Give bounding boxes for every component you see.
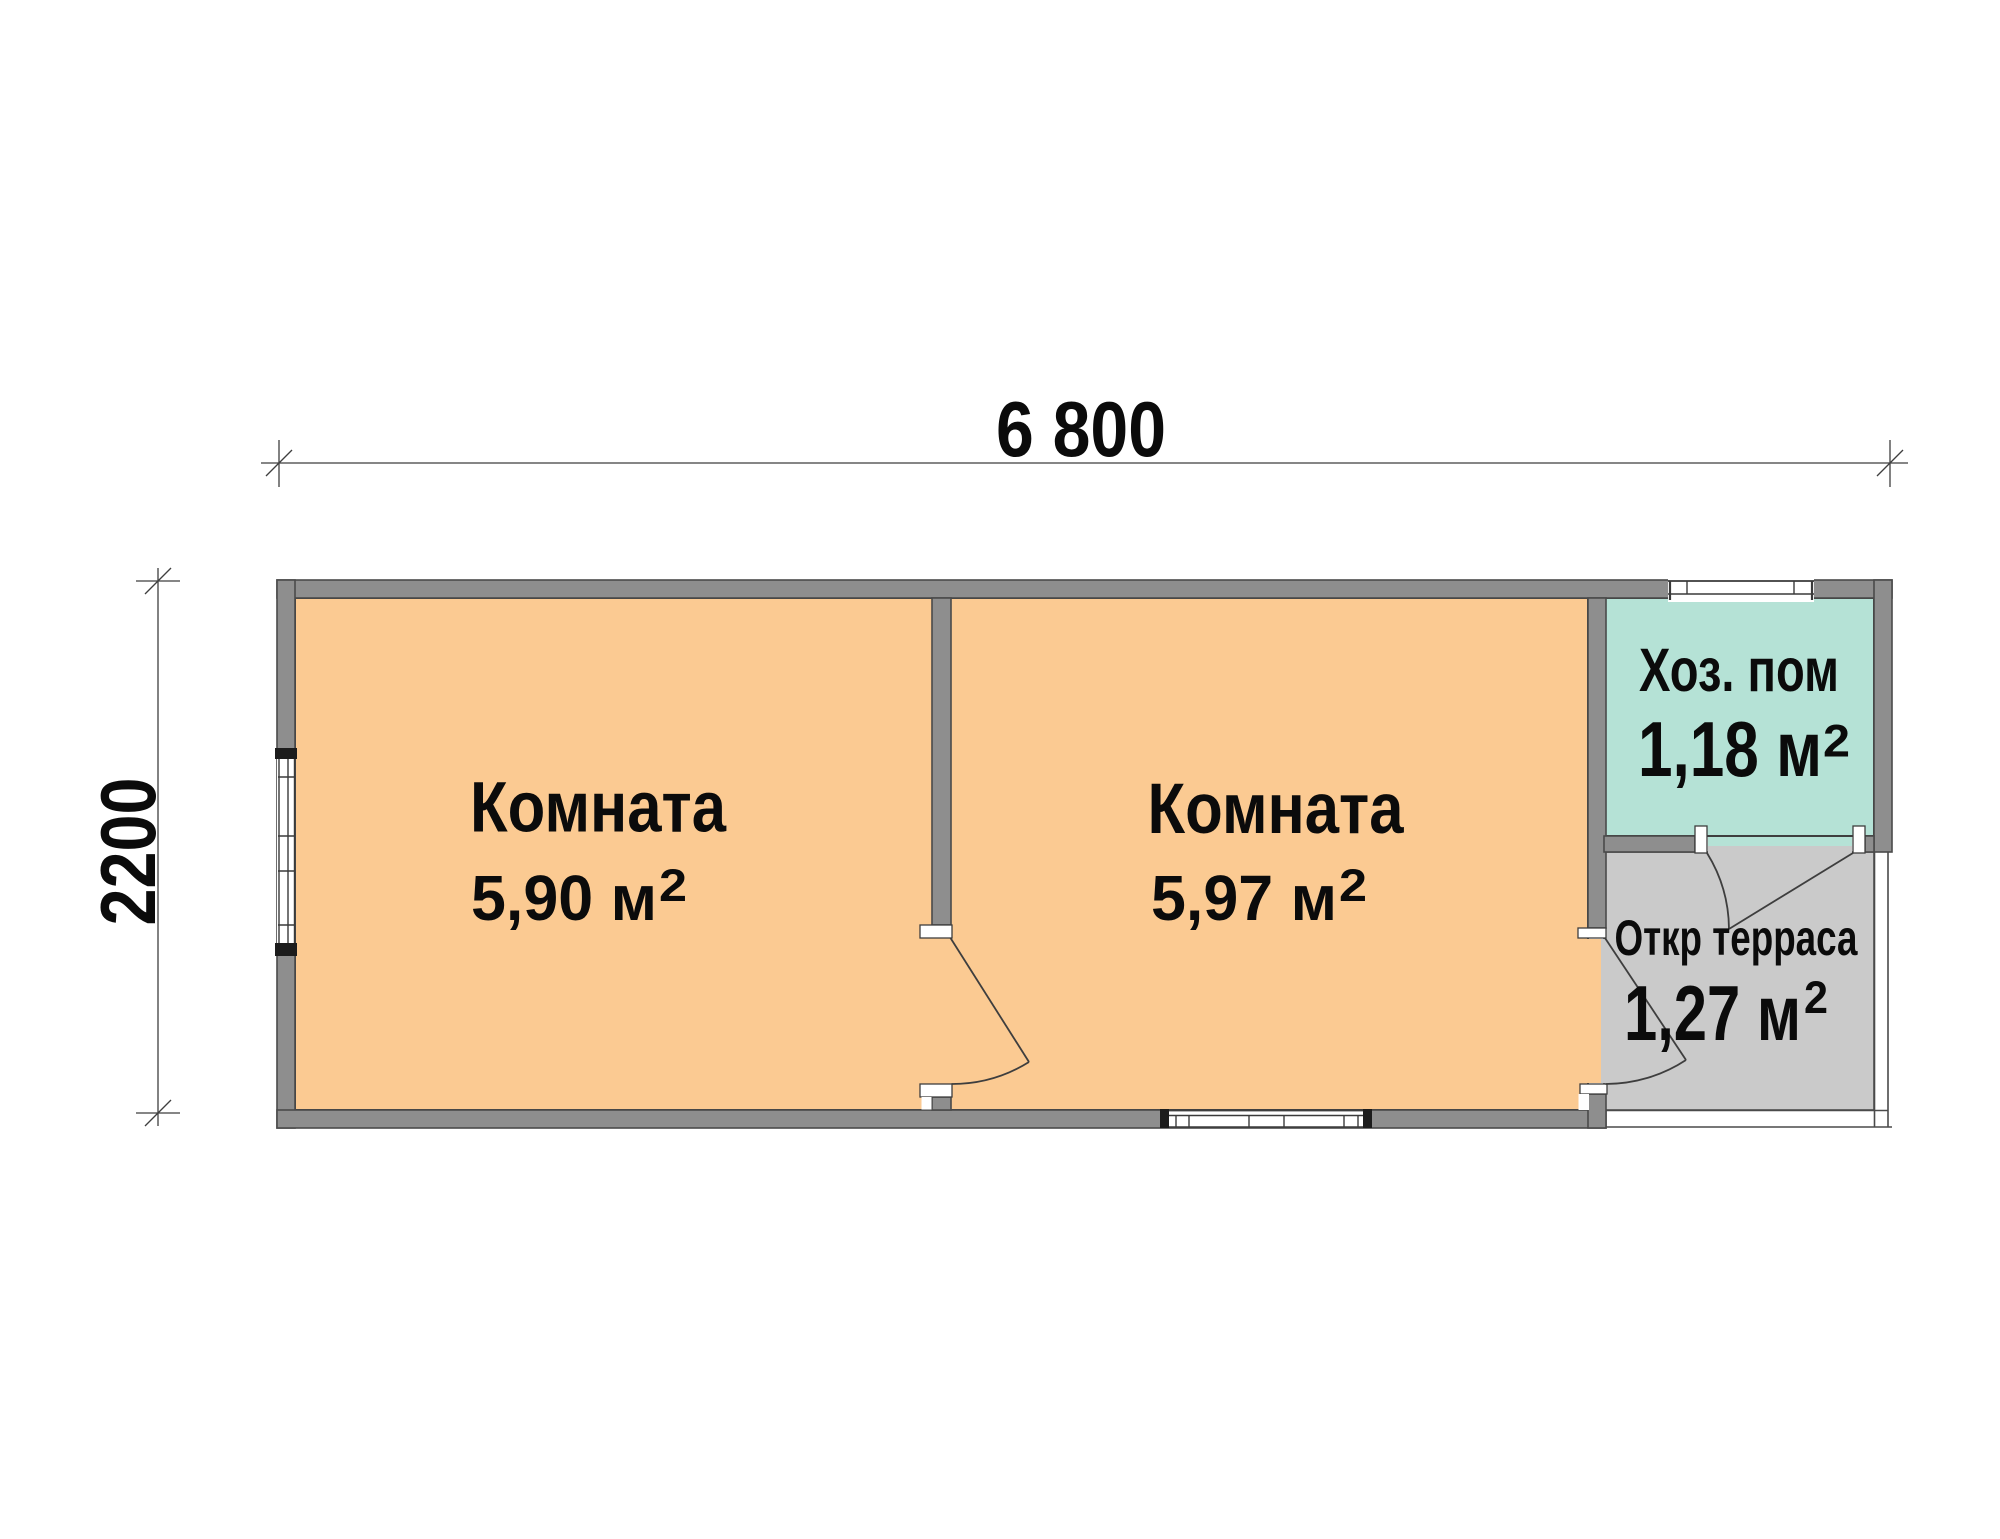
svg-text:2: 2 [1804,972,1828,1023]
svg-text:2: 2 [659,860,687,911]
svg-text:Откр терраса: Откр терраса [1615,910,1859,966]
svg-text:Комната: Комната [470,769,726,848]
svg-text:Комната: Комната [1148,770,1404,849]
svg-text:1,27 м: 1,27 м [1624,969,1801,1057]
svg-text:2200: 2200 [84,778,172,926]
svg-text:5,97 м: 5,97 м [1151,862,1337,934]
svg-text:2: 2 [1339,860,1367,911]
svg-text:Хоз. пом: Хоз. пом [1639,636,1839,704]
svg-text:2: 2 [1823,716,1850,767]
svg-text:1,18 м: 1,18 м [1638,705,1822,793]
svg-text:5,90 м: 5,90 м [471,862,657,934]
svg-text:6 800: 6 800 [996,385,1166,473]
